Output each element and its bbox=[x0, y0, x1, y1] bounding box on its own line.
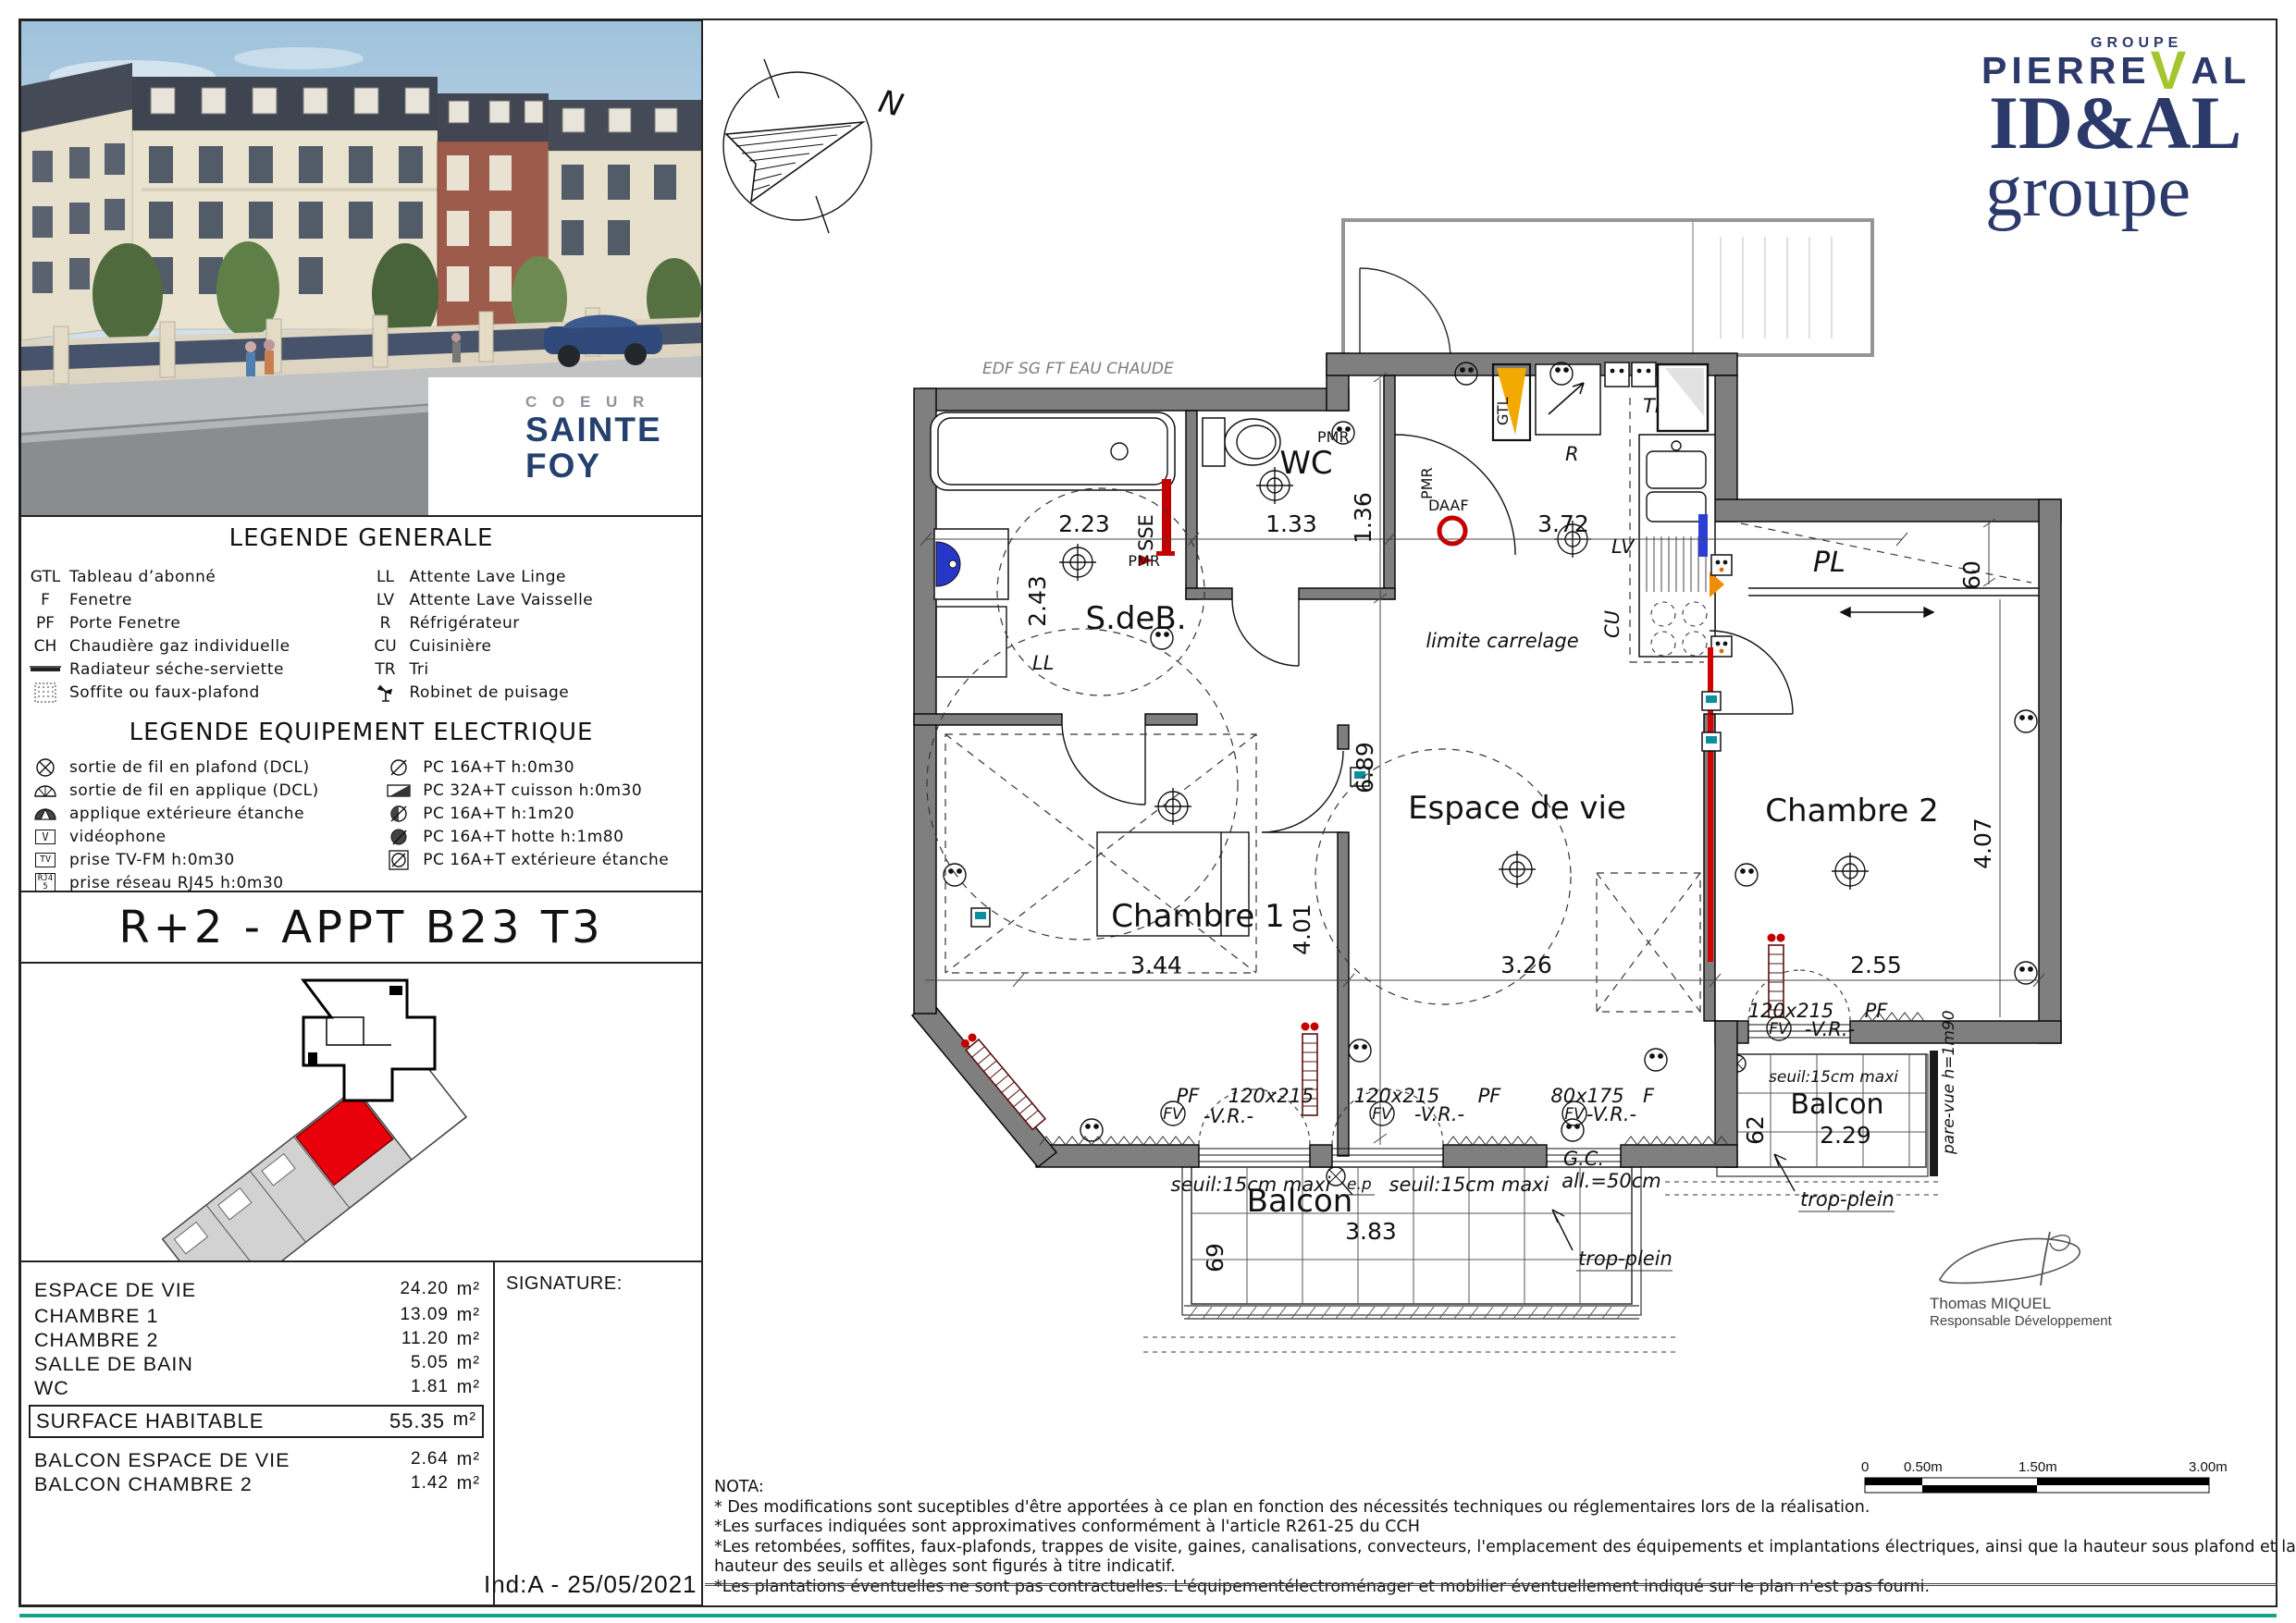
limite-carrelage-label: limite carrelage bbox=[1426, 630, 1578, 652]
allege-label: all.=50cm bbox=[1562, 1170, 1661, 1192]
vr-label: -V.R.- bbox=[1586, 1103, 1636, 1125]
svg-text:trop-plein: trop-plein bbox=[1578, 1248, 1673, 1270]
fv-label: FV bbox=[1163, 1105, 1184, 1124]
vr-label: -V.R.- bbox=[1805, 1018, 1855, 1040]
bathtub bbox=[931, 412, 1175, 490]
dim-133: 1.33 bbox=[1265, 510, 1317, 537]
dim-60: 60 bbox=[1958, 560, 1985, 590]
ll-label: LL bbox=[1032, 652, 1054, 674]
scale-bar: 0 0.50m 1.50m 3.00m bbox=[1850, 1459, 2239, 1502]
floorplan-drawing: N EDF SG FT EAU CHAUDE bbox=[0, 0, 2296, 1623]
pare-vue-screen bbox=[1930, 1051, 1938, 1176]
pf-label: PF bbox=[1478, 1085, 1502, 1107]
nota-bottom-rule bbox=[705, 1583, 2277, 1586]
dim-229: 2.29 bbox=[1820, 1122, 1871, 1149]
north-compass: N bbox=[723, 59, 907, 233]
dim-326: 3.26 bbox=[1500, 952, 1552, 978]
sse-label: SSE bbox=[1135, 514, 1157, 551]
landing-outline bbox=[1343, 220, 1872, 359]
svg-text:e.p: e.p bbox=[1347, 1175, 1372, 1194]
lv-label: LV bbox=[1611, 535, 1636, 558]
gc-label: G.C. bbox=[1563, 1148, 1604, 1170]
approver-block: Thomas MIQUEL Responsable Développement bbox=[1930, 1295, 2112, 1329]
wardrobe-zones bbox=[945, 734, 1700, 1012]
fridge-label: R bbox=[1565, 443, 1579, 465]
seuil-label: seuil:15cm maxi bbox=[1389, 1174, 1549, 1196]
cu-label: CU bbox=[1601, 610, 1623, 638]
room-balcon2: Balcon bbox=[1790, 1088, 1883, 1121]
approver-name: Thomas MIQUEL bbox=[1930, 1295, 2112, 1313]
f-label: F bbox=[1643, 1085, 1655, 1107]
dim-255: 2.55 bbox=[1850, 952, 1902, 978]
w120-label: 120x215 bbox=[1228, 1085, 1315, 1107]
scale-30: 3.00m bbox=[2189, 1459, 2228, 1475]
room-pl: PL bbox=[1813, 547, 1845, 579]
scale-05: 0.50m bbox=[1904, 1459, 1943, 1475]
dim-62: 62 bbox=[1742, 1115, 1769, 1145]
pmr-label: PMR bbox=[1418, 467, 1436, 499]
seuil-label: seuil:15cm maxi bbox=[1171, 1174, 1331, 1196]
fv-label: FV bbox=[1564, 1105, 1586, 1124]
plan-sheet: C O E U R SAINTE FOY LEGENDE GENERALE GT… bbox=[0, 0, 2296, 1623]
fv-label: FV bbox=[1372, 1105, 1393, 1124]
scale-bar-graphic bbox=[1850, 1476, 2239, 1500]
pmr-label: PMR bbox=[1128, 552, 1160, 570]
room-chambre2: Chambre 2 bbox=[1765, 793, 1938, 830]
fv-label: FV bbox=[1769, 1020, 1790, 1039]
nota-line: *Les surfaces indiquées sont approximati… bbox=[714, 1518, 2276, 1538]
approver-role: Responsable Développement bbox=[1930, 1313, 2112, 1329]
daaf-smoke-detector: DAAF bbox=[1428, 497, 1469, 544]
toilet bbox=[1203, 418, 1280, 466]
room-sdeb: S.deB. bbox=[1085, 600, 1186, 637]
vr-label: -V.R.- bbox=[1414, 1103, 1464, 1125]
dim-689: 6.89 bbox=[1352, 742, 1378, 793]
utility-shaft-ghost-text: EDF SG FT EAU CHAUDE bbox=[982, 360, 1174, 378]
room-wc: WC bbox=[1279, 445, 1332, 482]
scale-15: 1.50m bbox=[2018, 1459, 2057, 1475]
gtl-label: GTL bbox=[1494, 397, 1512, 425]
svg-text:trop-plein: trop-plein bbox=[1800, 1188, 1895, 1211]
tri-cupboard: TRI bbox=[1605, 363, 1708, 431]
dim-383: 3.83 bbox=[1345, 1218, 1397, 1245]
dim-136: 1.36 bbox=[1350, 492, 1376, 544]
seuil-label: seuil:15cm maxi bbox=[1769, 1068, 1898, 1087]
dim-344: 3.44 bbox=[1130, 952, 1182, 978]
scale-0: 0 bbox=[1861, 1459, 1869, 1475]
pare-vue-label: pare-vue h=1m90 bbox=[1940, 1010, 1958, 1155]
north-label: N bbox=[875, 83, 907, 125]
ep-drain-label: e.p bbox=[1343, 1175, 1375, 1195]
room-chambre1: Chambre 1 bbox=[1111, 898, 1284, 935]
signature-handwriting bbox=[1940, 1232, 2080, 1285]
nota-line: *Les plantations éventuelles ne sont pas… bbox=[714, 1578, 2276, 1598]
dim-372: 3.72 bbox=[1537, 510, 1589, 537]
nota-line: hauteur des seuils et allèges sont figur… bbox=[714, 1557, 2276, 1578]
dim-243: 2.43 bbox=[1024, 575, 1051, 627]
dim-407: 4.07 bbox=[1969, 818, 1996, 869]
pf-label: PF bbox=[1865, 1000, 1889, 1022]
footer-green-line bbox=[19, 1614, 2277, 1617]
room-espace: Espace de vie bbox=[1408, 790, 1626, 827]
dim-223: 2.23 bbox=[1058, 510, 1110, 537]
dim-69: 69 bbox=[1202, 1243, 1228, 1273]
vr-label: -V.R.- bbox=[1204, 1105, 1253, 1127]
pmr-label: PMR bbox=[1317, 428, 1350, 446]
fridge-slot: R bbox=[1536, 364, 1600, 465]
nota-line: *Les retombées, soffites, faux-plafonds,… bbox=[714, 1538, 2276, 1558]
kitchen-blue-marker bbox=[1698, 514, 1708, 557]
dim-401: 4.01 bbox=[1289, 904, 1315, 955]
